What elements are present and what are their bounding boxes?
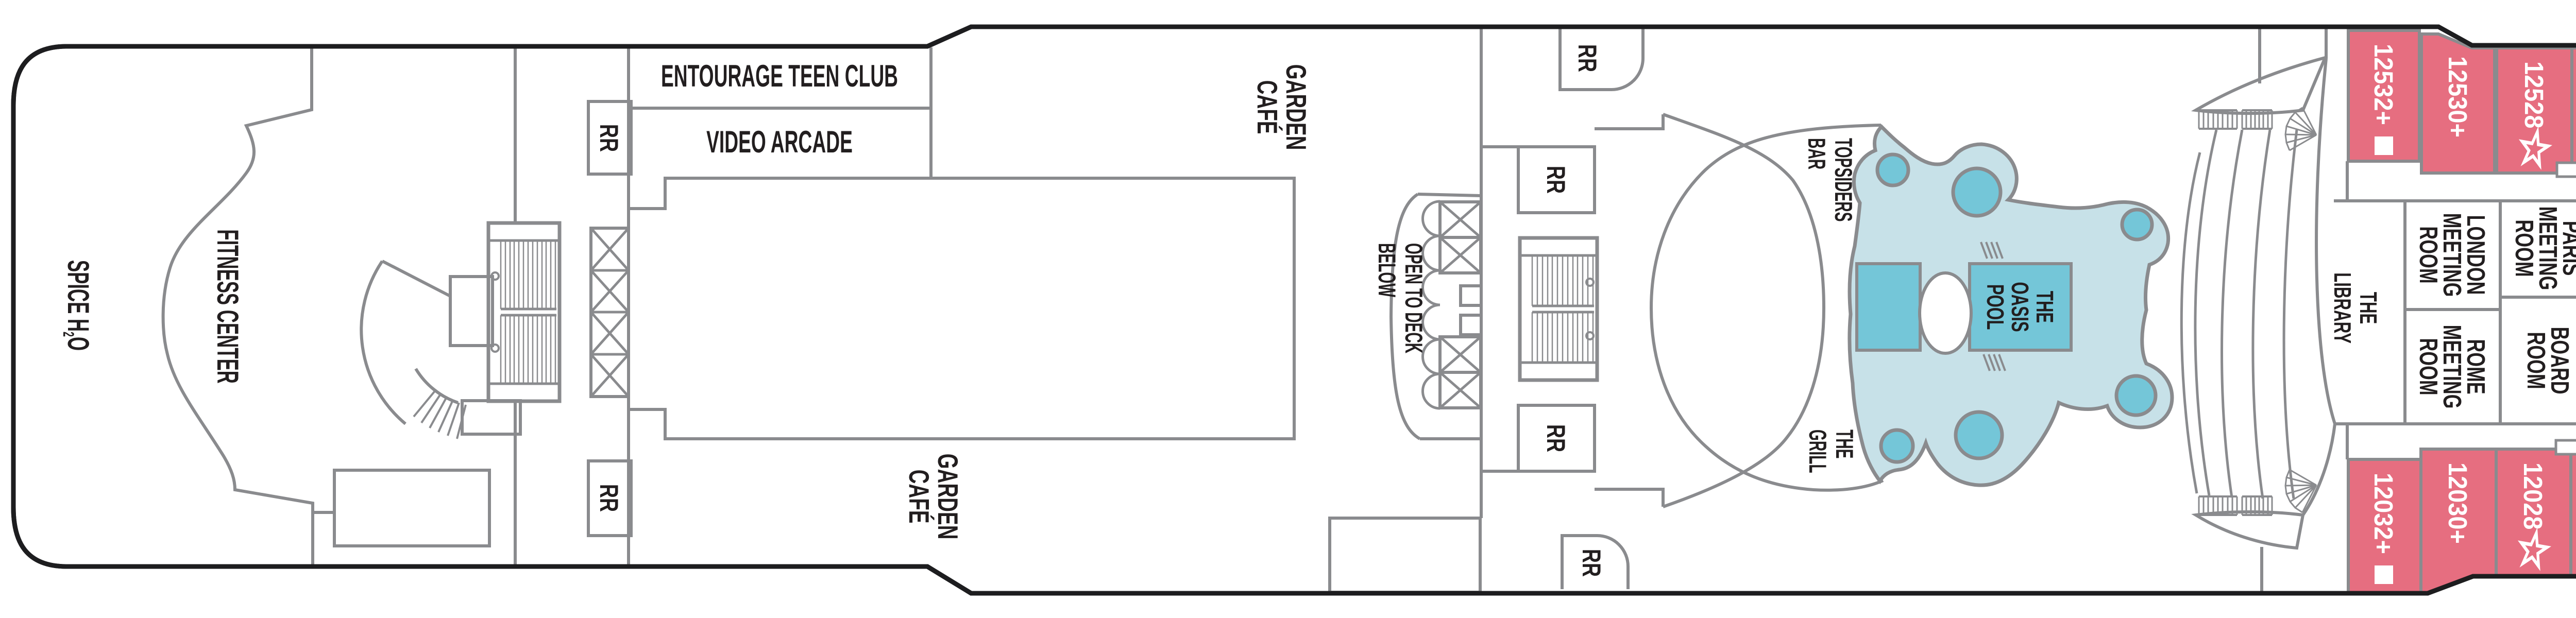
svg-text:RR: RR bbox=[1541, 424, 1570, 452]
svg-text:RR: RR bbox=[1573, 44, 1601, 72]
svg-text:12032+: 12032+ bbox=[2369, 473, 2398, 554]
svg-text:12028: 12028 bbox=[2518, 462, 2547, 529]
svg-text:12532+: 12532+ bbox=[2369, 44, 2398, 125]
svg-text:VIDEO ARCADE: VIDEO ARCADE bbox=[706, 125, 853, 159]
svg-text:RR: RR bbox=[595, 124, 623, 152]
svg-text:12528: 12528 bbox=[2519, 61, 2548, 128]
svg-text:RR: RR bbox=[595, 484, 623, 512]
svg-text:12530+: 12530+ bbox=[2443, 56, 2472, 138]
svg-text:BOARDROOM: BOARDROOM bbox=[2522, 327, 2574, 394]
svg-text:ENTOURAGE TEEN CLUB: ENTOURAGE TEEN CLUB bbox=[661, 59, 898, 93]
svg-text:RR: RR bbox=[1577, 549, 1605, 577]
svg-text:12030+: 12030+ bbox=[2443, 462, 2472, 544]
svg-text:SPICE H2O: SPICE H2O bbox=[60, 260, 94, 351]
svg-text:FITNESS CENTER: FITNESS CENTER bbox=[211, 229, 244, 384]
svg-text:RR: RR bbox=[1541, 166, 1570, 194]
